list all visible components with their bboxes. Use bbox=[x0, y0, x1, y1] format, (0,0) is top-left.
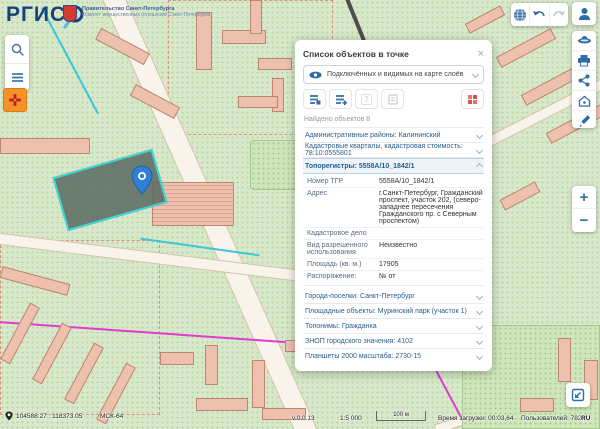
printer-icon bbox=[577, 54, 591, 67]
redo-arrow-icon bbox=[552, 9, 566, 21]
detail-label: Адрес bbox=[303, 190, 379, 225]
undo-button[interactable] bbox=[529, 3, 548, 26]
share-button[interactable] bbox=[572, 70, 596, 90]
map-building bbox=[196, 398, 248, 411]
fullscreen-icon bbox=[571, 388, 585, 402]
detail-value bbox=[379, 230, 484, 237]
object-group-row[interactable]: Кадастровые кварталы, кадастровая стоимо… bbox=[303, 143, 484, 158]
map-building bbox=[238, 96, 278, 108]
detail-value: Неизвестно bbox=[379, 242, 484, 256]
detail-row: Адрес г.Санкт-Петербург, Гражданский про… bbox=[303, 188, 484, 228]
detail-row: Площадь (кв. м.) 17905 bbox=[303, 259, 484, 271]
map-building bbox=[500, 181, 541, 210]
globe-extent-button[interactable] bbox=[511, 3, 529, 26]
app-version: v.0.0.13 bbox=[292, 415, 315, 422]
undo-arrow-icon bbox=[532, 9, 546, 21]
add-to-list-button[interactable] bbox=[329, 89, 352, 109]
map-building bbox=[0, 138, 90, 154]
detail-label: Номер ТГР bbox=[303, 178, 379, 185]
map-building bbox=[0, 303, 40, 365]
close-icon[interactable]: × bbox=[478, 49, 484, 59]
detail-row: Вид разрешенного использования Неизвестн… bbox=[303, 240, 484, 259]
detail-value: г.Санкт-Петербург, Гражданский проспект,… bbox=[379, 190, 484, 225]
home-bookmark-button[interactable] bbox=[572, 90, 596, 110]
object-group-row[interactable]: ЗНОП городского значения: 4102 bbox=[303, 334, 484, 349]
rosreestr-pkk-button[interactable] bbox=[461, 89, 484, 109]
detail-label: Распоряжение: bbox=[303, 273, 379, 280]
coordinates-pin-icon bbox=[5, 411, 13, 421]
search-button[interactable] bbox=[5, 35, 29, 63]
map-building bbox=[558, 338, 571, 382]
zoom-out-button[interactable]: − bbox=[572, 209, 596, 231]
detail-label: Вид разрешенного использования bbox=[303, 242, 379, 256]
basemap-icon bbox=[577, 35, 592, 46]
hamburger-icon bbox=[11, 72, 24, 83]
spb-coat-of-arms bbox=[63, 5, 77, 22]
map-building bbox=[205, 345, 218, 385]
chevron-down-icon bbox=[476, 322, 483, 329]
map-tools-toolbar bbox=[572, 31, 596, 128]
map-building bbox=[496, 28, 556, 68]
fullscreen-button[interactable] bbox=[566, 383, 590, 407]
detail-value: 5558А/10_1842/1 bbox=[379, 178, 484, 185]
group-label: Кадастровые кварталы, кадастровая стоимо… bbox=[305, 143, 477, 157]
redo-button[interactable] bbox=[549, 3, 568, 26]
chevron-down-icon bbox=[472, 71, 479, 78]
map-building-school bbox=[152, 182, 234, 226]
map-building bbox=[64, 343, 104, 405]
chevron-down-icon bbox=[476, 131, 483, 138]
map-building bbox=[252, 360, 265, 408]
map-building bbox=[465, 5, 505, 33]
chevron-down-icon bbox=[476, 146, 483, 153]
map-building bbox=[520, 398, 554, 412]
measure-draw-button[interactable] bbox=[572, 110, 596, 130]
share-icon bbox=[578, 74, 590, 87]
crs-label[interactable]: МСК-64 bbox=[100, 413, 123, 420]
users-online-label: Пользователей: 7826 bbox=[521, 415, 585, 422]
group-label: Топорегистры: 5558А/10_1842/1 bbox=[305, 163, 415, 170]
detail-row: Кадастровое дело bbox=[303, 228, 484, 240]
search-icon bbox=[11, 43, 24, 56]
detail-row: Распоряжение: № от bbox=[303, 271, 484, 282]
found-objects-count: Найдено объектов 8 bbox=[303, 114, 484, 128]
home-icon bbox=[578, 95, 591, 107]
object-details: Номер ТГР 5558А/10_1842/1 Адрес г.Санкт-… bbox=[303, 174, 484, 286]
chevron-down-icon bbox=[476, 352, 483, 359]
left-toolbar bbox=[5, 35, 29, 91]
map-scale[interactable]: 1:5 000 bbox=[340, 415, 362, 422]
object-group-row[interactable]: Планшеты 2000 масштаба: 2730-15 bbox=[303, 349, 484, 363]
app-logo: РГИС bbox=[6, 4, 66, 26]
identify-tool-icon bbox=[8, 93, 22, 107]
zoom-control: + − bbox=[572, 186, 596, 232]
object-group-row[interactable]: Административные районы: Калининский bbox=[303, 128, 484, 143]
document-icon bbox=[388, 94, 398, 105]
detail-value: 17905 bbox=[379, 261, 484, 268]
object-group-row-expanded[interactable]: Топорегистры: 5558А/10_1842/1 bbox=[303, 158, 484, 174]
chevron-down-icon bbox=[476, 292, 483, 299]
layer-filter-value: Подключённых и видимых на карте слоёв bbox=[327, 71, 473, 78]
print-button[interactable] bbox=[572, 50, 596, 70]
load-time-label: Время загрузки: 00:03,64 bbox=[438, 415, 514, 422]
eye-icon bbox=[309, 71, 322, 79]
map-building bbox=[250, 0, 262, 34]
basemap-button[interactable] bbox=[572, 31, 596, 50]
layer-filter-dropdown[interactable]: Подключённых и видимых на карте слоёв bbox=[303, 65, 484, 84]
detail-value: № от bbox=[379, 273, 484, 280]
globe-icon bbox=[513, 8, 527, 22]
active-tool-button[interactable] bbox=[3, 88, 27, 112]
object-group-row[interactable]: Площадные объекты: Муринский парк (участ… bbox=[303, 304, 484, 319]
user-account-button[interactable] bbox=[572, 2, 596, 25]
map-building bbox=[32, 323, 72, 385]
object-list-popup: Список объектов в точке × Подключённых и… bbox=[295, 40, 492, 371]
help-button-disabled: ? bbox=[355, 89, 378, 109]
pencil-icon bbox=[578, 114, 591, 127]
map-building bbox=[160, 352, 194, 365]
user-icon bbox=[578, 7, 591, 21]
group-label: Города-поселки: Санкт-Петербург bbox=[305, 293, 415, 300]
popup-title: Список объектов в точке bbox=[303, 49, 409, 59]
map-building bbox=[0, 266, 70, 296]
language-switcher[interactable]: RU bbox=[581, 415, 590, 422]
group-label: Топонимы: Гражданка bbox=[305, 323, 377, 330]
chevron-down-icon bbox=[476, 337, 483, 344]
chevron-down-icon bbox=[476, 307, 483, 314]
cadastral-map-icon bbox=[467, 94, 478, 105]
map-viewport[interactable]: РГИС Правительство Санкт-Петербурга Коми… bbox=[0, 0, 600, 429]
history-toolbar bbox=[511, 3, 568, 26]
object-group-row[interactable]: Топонимы: Гражданка bbox=[303, 319, 484, 334]
group-label: ЗНОП городского значения: 4102 bbox=[305, 338, 413, 345]
map-pin-icon bbox=[130, 165, 154, 197]
detail-row: Номер ТГР 5558А/10_1842/1 bbox=[303, 176, 484, 188]
detail-label: Площадь (кв. м.) bbox=[303, 261, 379, 268]
zoom-in-button[interactable]: + bbox=[572, 186, 596, 208]
detail-label: Кадастровое дело bbox=[303, 230, 379, 237]
chevron-up-icon bbox=[476, 162, 483, 169]
card-button-disabled bbox=[381, 89, 404, 109]
list-add-icon bbox=[335, 94, 347, 105]
map-building bbox=[196, 12, 212, 70]
object-group-row[interactable]: Города-поселки: Санкт-Петербург bbox=[303, 289, 484, 304]
cursor-coordinates: 104588.27 : 118373.05 bbox=[16, 413, 82, 420]
scalebar: 100 м bbox=[376, 411, 426, 421]
menu-button[interactable] bbox=[5, 64, 29, 91]
list-edit-icon bbox=[309, 94, 321, 105]
group-label: Площадные объекты: Муринский парк (участ… bbox=[305, 308, 467, 315]
export-list-button[interactable] bbox=[303, 89, 326, 109]
map-building bbox=[258, 58, 292, 70]
group-label: Планшеты 2000 масштаба: 2730-15 bbox=[305, 353, 421, 360]
gov-line2: Комитет имущественных отношений Санкт-Пе… bbox=[82, 12, 222, 18]
question-icon: ? bbox=[361, 94, 371, 105]
group-label: Административные районы: Калининский bbox=[305, 132, 441, 139]
gov-caption: Правительство Санкт-Петербурга Комитет и… bbox=[82, 6, 222, 18]
